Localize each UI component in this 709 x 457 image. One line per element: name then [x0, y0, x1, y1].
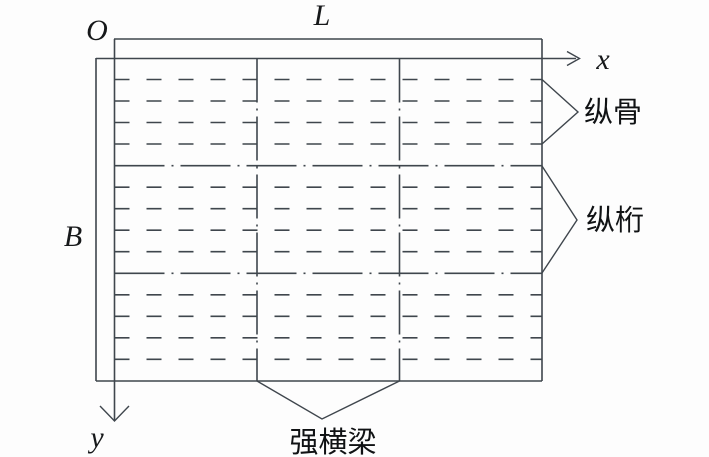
origin-label: O [86, 14, 108, 47]
x-axis-label: x [595, 43, 610, 76]
y-axis-label: y [87, 421, 104, 454]
stiffener-callout-line [542, 80, 578, 145]
girder-callout-line [542, 166, 577, 273]
strong-transverse-beam-label: 强横梁 [289, 426, 376, 457]
plate-breadth-label: B [64, 220, 82, 253]
longitudinal-stiffener-label: 纵骨 [584, 97, 642, 129]
grillage-figure: L O x B y 纵骨 纵桁 强横梁 [0, 0, 709, 457]
plate-length-label: L [313, 0, 331, 32]
longitudinal-girder-label: 纵桁 [586, 204, 644, 237]
structure-lines-layer [96, 39, 580, 421]
grillage-diagram: L O x B y 纵骨 纵桁 强横梁 [0, 0, 709, 457]
beam-callout-line [257, 381, 400, 419]
